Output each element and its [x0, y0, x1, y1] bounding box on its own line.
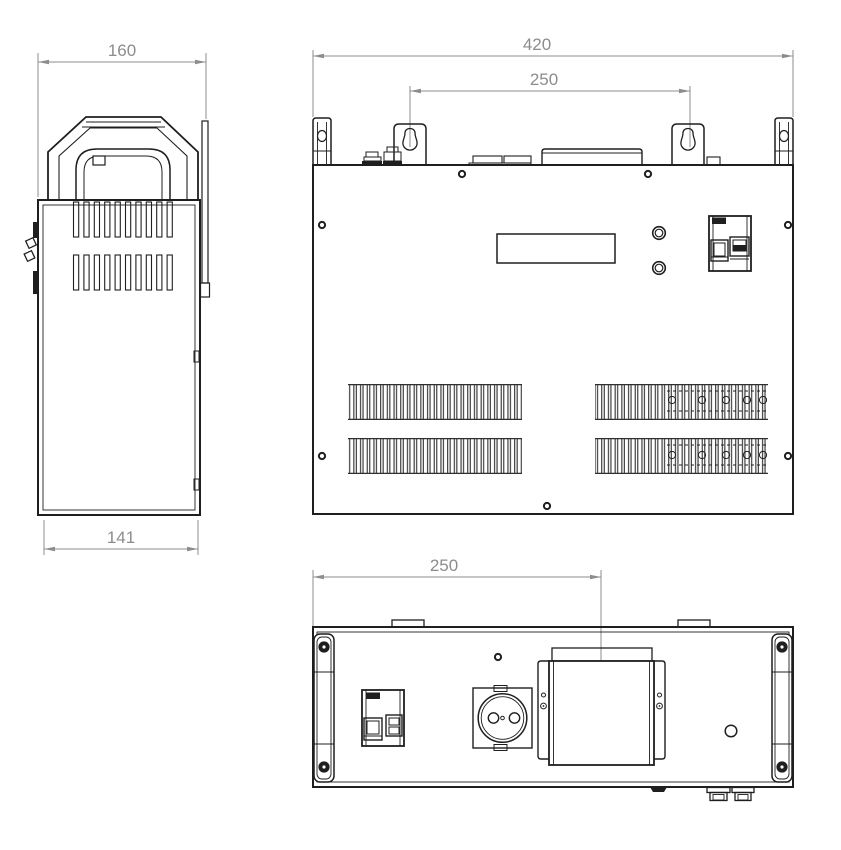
side-view — [24, 117, 209, 515]
dim-label-141: 141 — [107, 528, 135, 547]
side-connectors — [24, 222, 38, 294]
mounting-bracket-right — [775, 118, 793, 166]
power-socket — [473, 686, 532, 751]
corner-bracket-right — [772, 634, 792, 782]
dim-label-250-bottom: 250 — [430, 556, 458, 575]
breaker-label — [712, 218, 726, 225]
dim-label-250-top: 250 — [530, 70, 558, 89]
keyhole-slot — [681, 129, 695, 151]
technical-drawing-page: 160 141 420 250 250 — [0, 0, 841, 850]
terminal-cover — [538, 648, 665, 765]
carry-handle — [48, 117, 198, 200]
breaker-label — [366, 693, 380, 700]
side-body — [38, 121, 210, 515]
control-buttons — [653, 227, 666, 275]
dim-label-160: 160 — [108, 41, 136, 60]
socket-pin-hole — [488, 713, 498, 723]
circuit-breaker-front — [709, 216, 751, 271]
keyhole-bracket-right — [672, 124, 704, 166]
top-cover-box — [542, 149, 642, 165]
top-fittings — [362, 147, 720, 166]
dim-label-420: 420 — [523, 35, 551, 54]
circuit-breaker-bottom — [362, 690, 404, 746]
rear-flange — [202, 121, 208, 283]
mounting-bracket-left — [313, 118, 331, 166]
corner-bracket-left — [314, 634, 334, 782]
button-lower — [653, 262, 666, 275]
vent-grille-front-left — [348, 384, 522, 474]
button-upper — [653, 227, 666, 240]
dimension-250-top: 250 — [410, 70, 690, 147]
dimension-250-bottom: 250 — [313, 556, 601, 661]
vent-hole — [725, 725, 737, 737]
vent-grille-front-right — [595, 384, 768, 474]
lcd-display — [497, 234, 615, 263]
three-view-drawing: 160 141 420 250 250 — [0, 0, 841, 850]
dimension-141: 141 — [44, 520, 198, 555]
bottom-view — [313, 620, 793, 801]
socket-pin-hole — [509, 713, 519, 723]
panel-screw — [495, 654, 501, 660]
dimension-160: 160 — [38, 41, 206, 197]
side-vent-slots — [74, 202, 173, 290]
cable-connectors — [650, 787, 754, 801]
front-view — [313, 118, 793, 514]
